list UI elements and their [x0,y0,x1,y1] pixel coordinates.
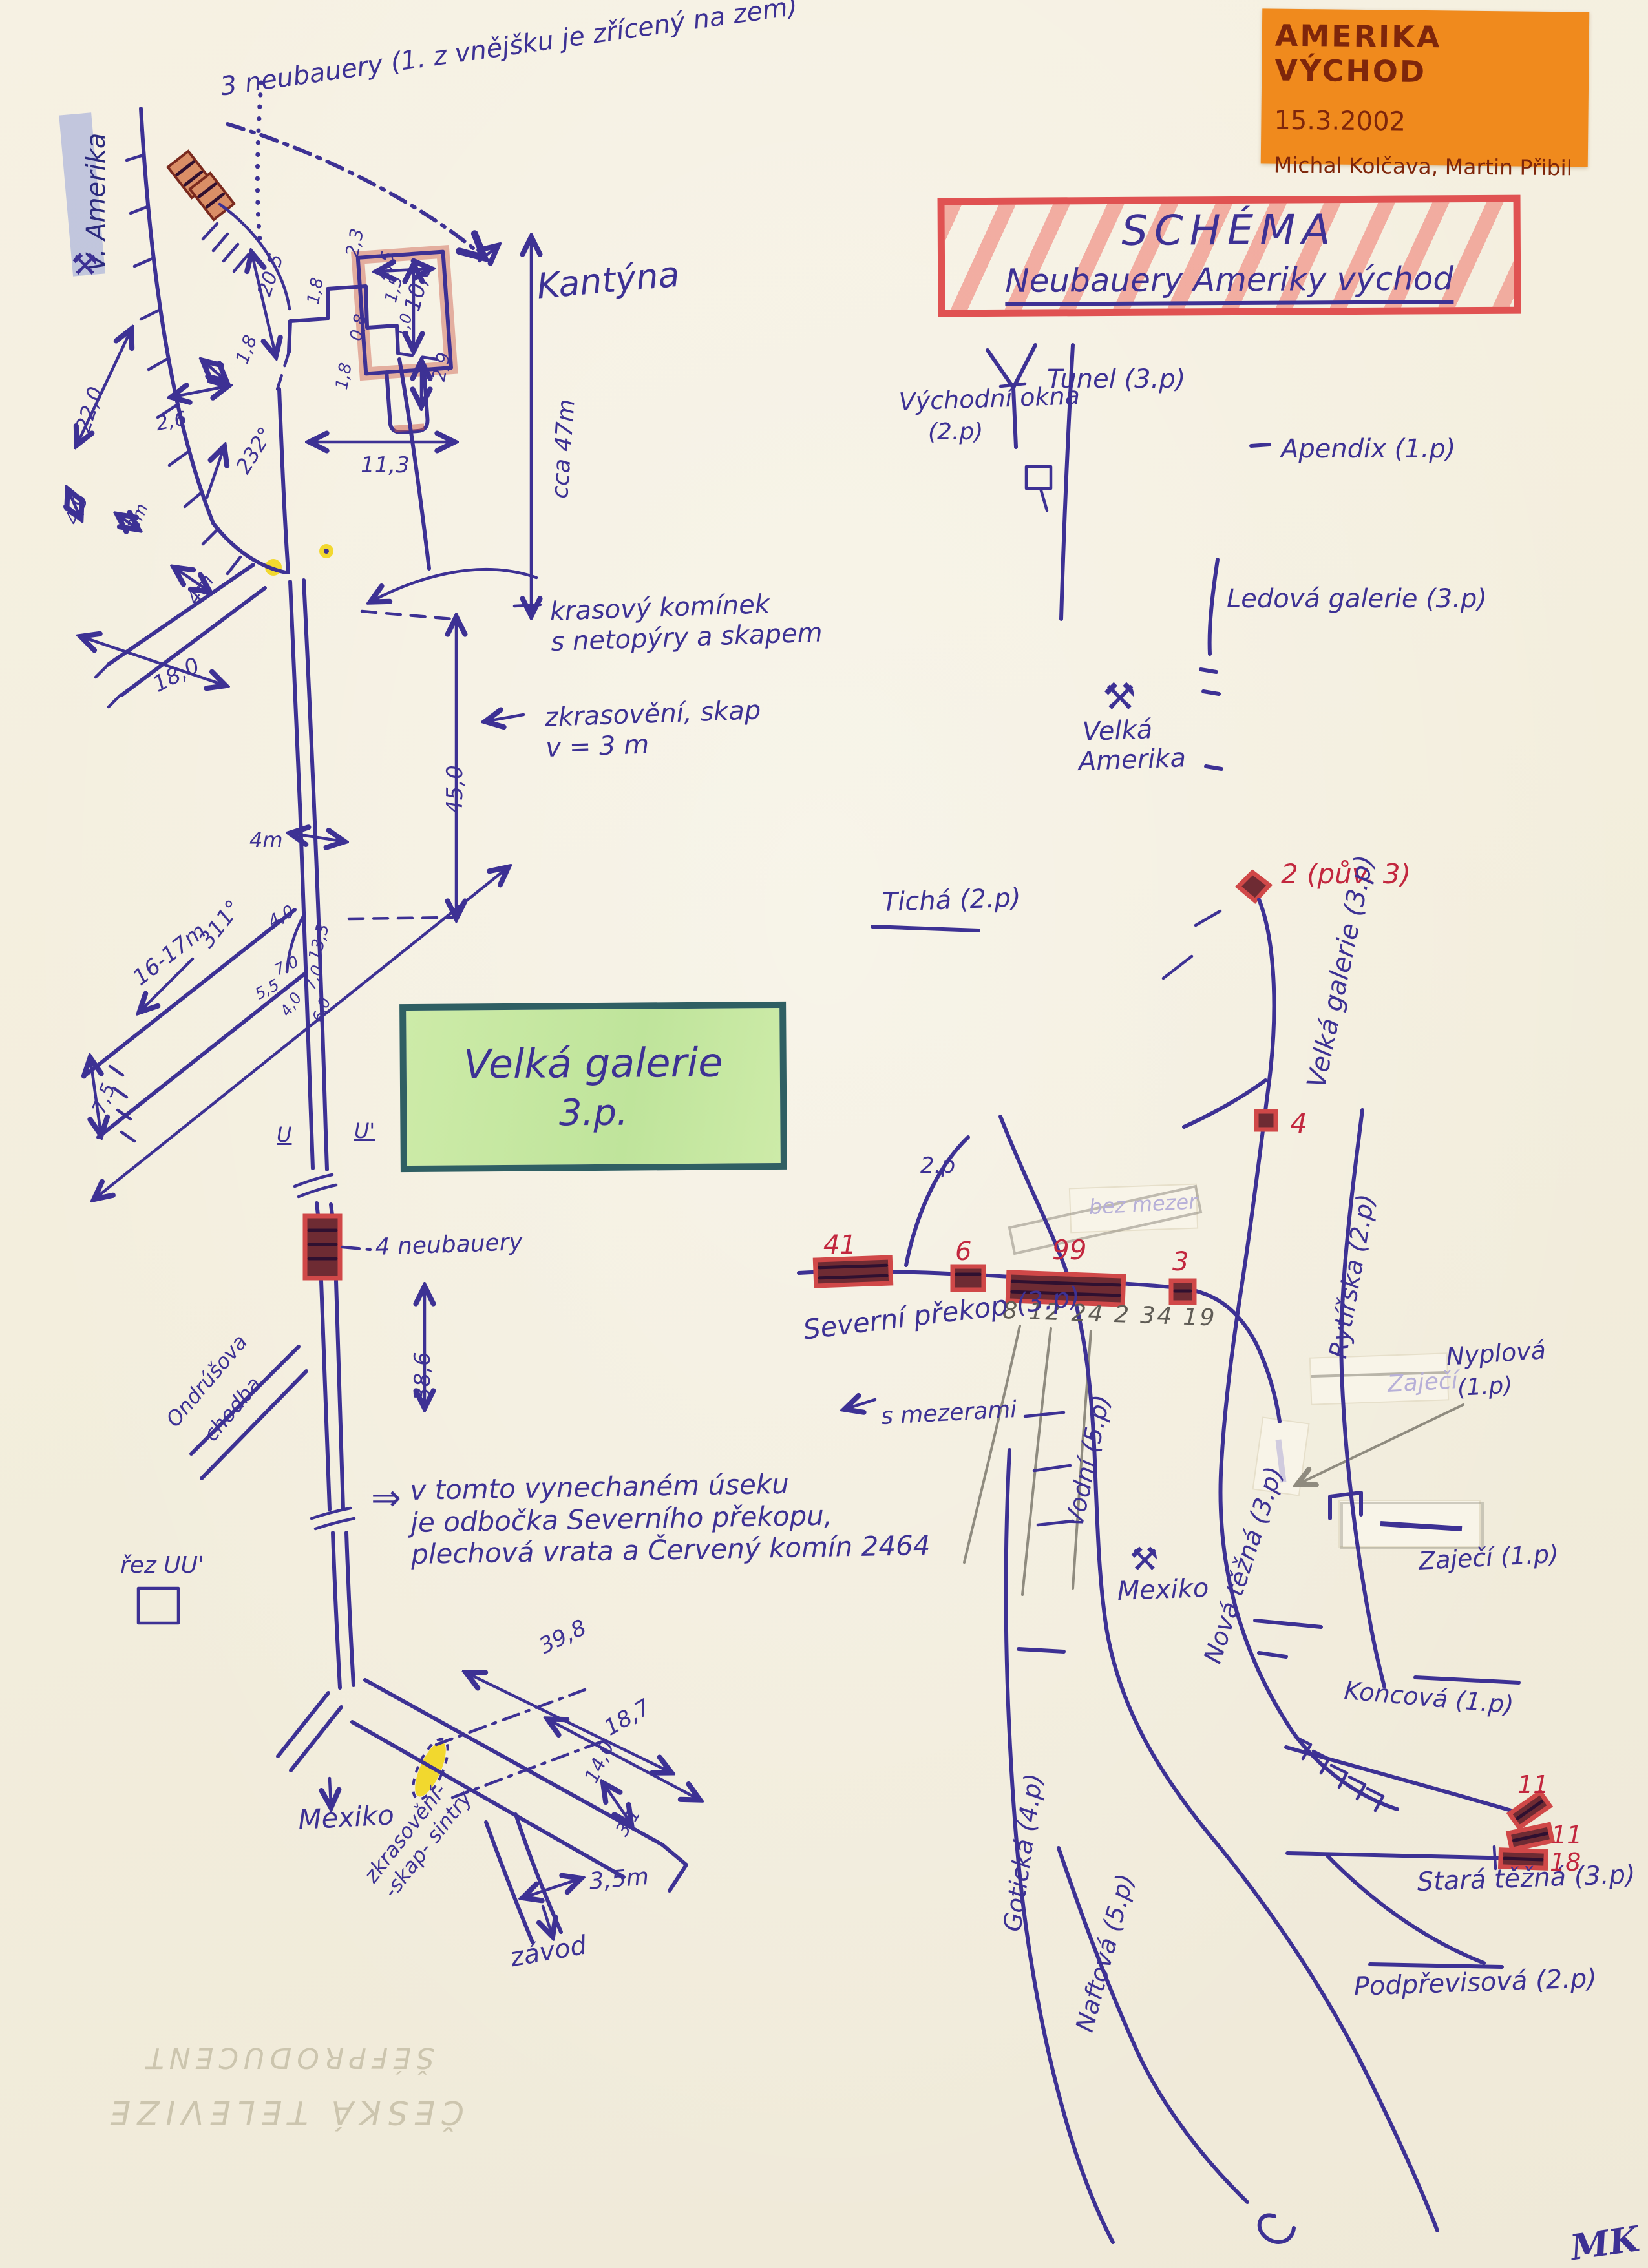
bypass-note: v tomto vynechaném úseku je odbočka Seve… [410,1465,931,1571]
dim-39-8: 39,8 [535,1615,591,1659]
dim-2-9: 2,9 [428,350,455,383]
dim-18-0: 18,0 [149,653,204,698]
zkrasoveni2-note: zkrasovění- -skap- sintry [359,1771,477,1902]
dim-7-5: 7,5 [88,1080,121,1118]
tunel-label: Tunel (3.p) [1047,364,1185,395]
station-4: 4 [1290,1108,1307,1140]
station-11a: 11 [1517,1770,1548,1800]
dim-13-3: 13,3 [305,921,334,963]
dim-45-0: 45,0 [442,765,468,814]
apendix-label: Apendix (1.p) [1281,434,1455,465]
scanned-survey-sketch: AMERIKA VÝCHOD 15.3.2002 Michal Kolčava,… [0,0,1648,2268]
dim-20-5: 20,5 [253,251,288,299]
section-u: U [277,1123,291,1148]
kominek-note: krasový komínek s netopýry a skapem [549,587,823,658]
neubauery-4-label: 4 neubauery [375,1229,523,1261]
dim-cca-47m: cca 47m [547,398,581,499]
crossed-hammers-icon: ⚒ [1130,1540,1159,1579]
dim-7-0-b: 7,0 [301,963,327,992]
signature-mk: MK [1568,2218,1642,2268]
ticha-label: Tichá (2.p) [882,883,1021,919]
koncova-label: Koncová (1.p) [1343,1676,1515,1720]
watermark-line2: ČESKÁ TELEVIZE [103,2093,464,2131]
double-arrow-icon: ⇒ [371,1477,401,1520]
bez-mezer-label: bez mezer [1088,1190,1198,1219]
vodni-label: Vodní (5.p) [1060,1392,1116,1530]
dim-16-17m: 16-17m [128,918,211,991]
severni-prekop-label: Severní překop (3.p) [801,1280,1082,1346]
vychodni-okna-2: (2.p) [928,419,983,446]
dim-4m-a: 4m [182,570,219,609]
dim-7-0-a: 7,0 [271,952,302,980]
nyplova-label: Nyplová [1445,1336,1547,1372]
station-18: 18 [1550,1848,1581,1877]
dim-1-0: 1,0 [393,312,416,340]
dim-14-0: 14,0 [580,1738,619,1786]
station-99: 99 [1052,1234,1086,1266]
dim-3-1: 3,1 [611,1804,645,1840]
station-11b: 11 [1551,1821,1582,1850]
stara-tezna-label: Stará těžná (3.p) [1417,1860,1636,1898]
dim-4-9: 4,9 [61,491,94,529]
dim-1-8-a: 1,8 [304,276,328,306]
dim-4-0-a: 4,0 [265,901,298,932]
dim-1-8-c: 1,8 [231,332,261,366]
dim-2-6: 2,6 [154,407,189,436]
dim-22-0: 22,0 [71,384,109,435]
watermark-line1: ŠÉFPRODUCENT [142,2041,434,2074]
station-3: 3 [1172,1247,1188,1277]
velka-amerika-2: Amerika [1078,743,1187,777]
mexiko-left-label: Mexiko [297,1799,395,1836]
rez-uu-label: řez UU' [120,1552,204,1579]
zavod-label: závod [508,1930,589,1973]
dim-11-3: 11,3 [361,452,410,478]
podprevisova-label: Podpřevisová (2.p) [1353,1964,1598,2002]
s-mezerami-label: s mezerami [880,1396,1017,1431]
zajeci-faded-label: Zaječí [1387,1367,1459,1398]
dim-6-0: 6,0 [309,995,335,1025]
nyplova-1p: (1.p) [1457,1372,1513,1403]
ledova-galerie-label: Ledová galerie (3.p) [1227,584,1487,614]
station-41: 41 [823,1230,856,1261]
dim-3-5m: 3,5m [588,1864,650,1896]
dim-2-3: 2,3 [341,226,368,258]
dim-4-0-b: 4,0 [277,989,306,1020]
goticka-label: Gotická (4.p) [998,1772,1049,1933]
dim-5-5: 5,5 [252,976,282,1003]
zkrasoveni-note: zkrasovění, skap v = 3 m [544,695,763,764]
nova-tezna-label: Nová těžná (3.p) [1198,1463,1289,1667]
station-6: 6 [955,1237,971,1267]
neubauery-3-note: 3 neubauery (1. z vnějšku je zřícený na … [218,0,799,103]
dim-18-7: 18,7 [600,1694,655,1741]
rytirska-label: Rytířská (2.p) [1324,1192,1381,1361]
zajeci-label: Zaječí (1.p) [1418,1540,1559,1576]
dim-4m-b: 4m [249,828,283,853]
level-2p: 2.p [920,1153,955,1179]
dim-10-0: 10,0 [399,260,437,315]
naftova-label: Naftová (5.p) [1070,1871,1140,2035]
dim-3m: 3m [124,501,153,533]
crossed-hammers-icon: ⚒ [1103,675,1136,719]
dim-0-8: 0,8 [346,313,372,343]
labels-layer: 3 neubauery (1. z vnějšku je zřícený na … [0,0,1648,2268]
velka-amerika-1: Velká [1082,715,1153,748]
crossed-hammers-icon: ⚒ [71,247,98,282]
bearing-232: 232° [231,423,279,478]
kantyna-label: Kantýna [535,254,681,308]
dim-38-6: 38,6 [410,1352,436,1401]
section-u-prime: U' [354,1119,375,1144]
dim-1-8-b: 1,8 [332,361,356,391]
